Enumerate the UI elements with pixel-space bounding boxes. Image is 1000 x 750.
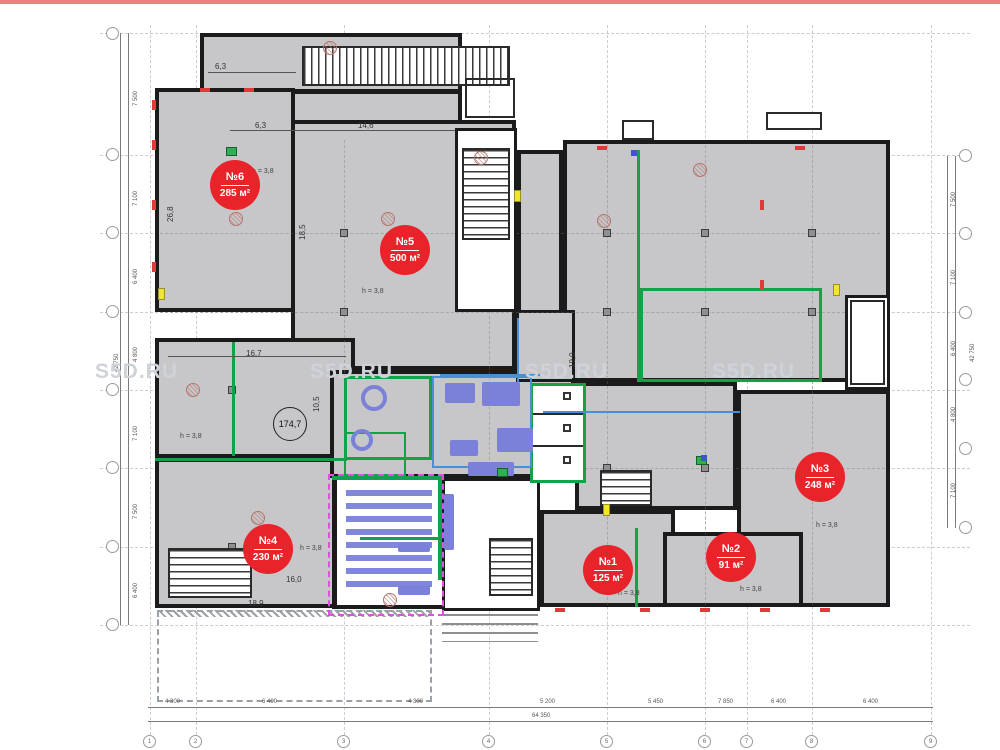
marker-green: [497, 468, 508, 477]
column: [603, 229, 611, 237]
green-partition: [232, 342, 235, 456]
grid-bubble-label: 1: [148, 739, 151, 745]
unit-area: 285 м²: [220, 186, 250, 199]
shaft-top: [465, 78, 515, 118]
wc-block: [530, 383, 586, 483]
dim-label: 18,5: [298, 224, 307, 240]
unit-number: №3: [806, 463, 834, 478]
desk-cluster: [482, 382, 520, 406]
stamp-mark: [693, 163, 707, 177]
alarm-mark: [152, 140, 156, 150]
wc-fixture: [563, 392, 571, 400]
stamp-mark: [597, 214, 611, 228]
stairs-unit-4: [168, 548, 252, 598]
axis-dim: 7 500: [951, 192, 957, 207]
watermark: S5D.RU: [525, 360, 608, 384]
grid-bubble-label: 7: [745, 739, 748, 745]
unit-number: №5: [391, 236, 419, 251]
grid-bubble: [959, 227, 972, 240]
height-note: h = 3,8: [816, 522, 838, 529]
stamp-mark: [323, 41, 337, 55]
grid-bubble-label: 5: [605, 739, 608, 745]
axis-dim: 6 400: [863, 699, 878, 705]
stairs-bottom: [489, 538, 533, 596]
marker-yellow: [514, 190, 521, 202]
grid-bubble: [959, 373, 972, 386]
axis-dim: 7 100: [951, 483, 957, 498]
alarm-mark: [700, 608, 710, 612]
axis-dim: 4 300: [408, 699, 423, 705]
alarm-mark: [597, 146, 607, 150]
alarm-mark: [244, 88, 254, 92]
axis-dim: 6 400: [133, 583, 139, 598]
round-table: [361, 385, 387, 411]
axis-dim: 6 400: [771, 699, 786, 705]
alarm-mark: [760, 200, 764, 210]
floorplan-page: { "page": { "watermark": "S5D.RU", "top_…: [0, 0, 1000, 750]
stamp-mark: [474, 151, 488, 165]
grid-bubble-label: 9: [929, 739, 932, 745]
marker-green: [226, 147, 237, 156]
stairs-mid: [600, 470, 652, 506]
marker-yellow: [158, 288, 165, 300]
dim-label: 16,0: [286, 575, 302, 584]
alarm-mark: [152, 100, 156, 110]
marker-blue: [631, 150, 637, 156]
entrance-steps: [442, 614, 538, 642]
dim-label: 26,8: [166, 206, 175, 222]
grid-bubble: [959, 442, 972, 455]
marker-yellow: [833, 284, 840, 296]
grid-bubble: 9: [924, 735, 937, 748]
axis-dim: 7 100: [133, 191, 139, 206]
grid-bubble: [106, 27, 119, 40]
column: [701, 229, 709, 237]
marker-blue: [701, 455, 707, 461]
grid-bubble: [106, 148, 119, 161]
terrace-outline: [157, 610, 432, 702]
unit-badge-4: №4 230 м²: [243, 524, 293, 574]
room-unit-6-upper: [291, 90, 462, 124]
area-circle-174: 174,7: [273, 407, 307, 441]
unit-badge-2: №2 91 м²: [706, 532, 756, 582]
axis-line-left-total: [120, 33, 121, 625]
axis-line-bottom: [148, 707, 933, 708]
axis-dim: 6 400: [262, 699, 277, 705]
grid-bubble-label: 8: [810, 739, 813, 745]
stamp-mark: [251, 511, 265, 525]
column: [340, 308, 348, 316]
alarm-mark: [555, 608, 565, 612]
desk-cluster: [450, 440, 478, 456]
shaft-right: [850, 300, 885, 385]
grid-bubble-label: 4: [487, 739, 490, 745]
wc-divider: [533, 413, 583, 415]
wall-niche: [622, 120, 654, 140]
round-table: [351, 429, 373, 451]
unit-area: 248 м²: [805, 478, 835, 491]
unit-badge-6: №6 285 м²: [210, 160, 260, 210]
seat-strip: [444, 494, 454, 550]
page-top-bar: [0, 0, 1000, 4]
height-note: h = 3,8: [362, 288, 384, 295]
axis-dim: 7 500: [133, 91, 139, 106]
column: [603, 308, 611, 316]
axis-dim: 7 100: [133, 426, 139, 441]
axis-line-bottom-total: [148, 721, 933, 722]
grid-bubble: 7: [740, 735, 753, 748]
grid-bubble: [959, 521, 972, 534]
axis-total: 42 750: [970, 344, 976, 362]
grid-bubble: 2: [189, 735, 202, 748]
grid-line-inner: [160, 233, 880, 234]
alarm-mark: [760, 280, 764, 290]
grid-bubble-label: 2: [194, 739, 197, 745]
unit-area: 125 м²: [593, 571, 623, 584]
wc-fixture: [563, 424, 571, 432]
height-note: h = 3,8: [740, 586, 762, 593]
grid-bubble: 3: [337, 735, 350, 748]
dim-label: 10,5: [312, 396, 321, 412]
grid-line: [931, 25, 932, 740]
desk-cluster: [497, 428, 533, 452]
watermark: S5D.RU: [310, 360, 393, 384]
axis-dim: 7 850: [718, 699, 733, 705]
axis-line-right: [947, 156, 948, 528]
axis-dim: 7 100: [951, 270, 957, 285]
grid-bubble: [959, 149, 972, 162]
room-annex: [517, 150, 563, 330]
grid-bubble: [959, 306, 972, 319]
column: [340, 229, 348, 237]
dim-label: 14,6: [358, 121, 374, 130]
alarm-mark: [640, 608, 650, 612]
dim-label: 18,9: [248, 599, 264, 608]
green-partition: [155, 458, 347, 461]
stamp-mark: [186, 383, 200, 397]
alarm-mark: [152, 200, 156, 210]
unit-number: №2: [717, 543, 745, 558]
axis-dim: 5 200: [540, 699, 555, 705]
axis-dim: 4 300: [165, 699, 180, 705]
wall-niche: [766, 112, 822, 130]
axis-dim: 7 500: [133, 504, 139, 519]
watermark: S5D.RU: [95, 360, 178, 384]
dim-line: [230, 130, 455, 131]
wc-fixture: [563, 456, 571, 464]
alarm-mark: [795, 146, 805, 150]
watermark: S5D.RU: [712, 360, 795, 384]
grid-bubble: [106, 540, 119, 553]
grid-bubble: 8: [805, 735, 818, 748]
magenta-zone-outline: [328, 474, 444, 616]
alarm-mark: [152, 262, 156, 272]
unit-badge-1: №1 125 м²: [583, 545, 633, 595]
unit-number: №4: [254, 535, 282, 550]
alarm-mark: [760, 608, 770, 612]
marker-yellow: [603, 504, 610, 516]
dim-line: [208, 72, 296, 73]
column: [701, 464, 709, 472]
grid-bubble: [106, 226, 119, 239]
grid-bubble: [106, 618, 119, 631]
dim-label: 6,3: [255, 121, 266, 130]
axis-dim: 6 400: [133, 269, 139, 284]
grid-bubble-label: 3: [342, 739, 345, 745]
unit-badge-3: №3 248 м²: [795, 452, 845, 502]
dim-label: 16,7: [246, 349, 262, 358]
grid-bubble: 1: [143, 735, 156, 748]
grid-bubble: [106, 305, 119, 318]
grid-bubble-label: 6: [703, 739, 706, 745]
stamp-mark: [229, 212, 243, 226]
grid-bubble: 5: [600, 735, 613, 748]
blue-glazing: [517, 318, 519, 382]
unit-number: №1: [594, 556, 622, 571]
column: [808, 229, 816, 237]
unit-area: 230 м²: [253, 550, 283, 563]
dim-label: 6,3: [215, 62, 226, 71]
alarm-mark: [200, 88, 210, 92]
height-note: h = 3,8: [180, 433, 202, 440]
desk-cluster: [445, 383, 475, 403]
alarm-mark: [820, 608, 830, 612]
unit-number: №6: [221, 171, 249, 186]
stamp-mark: [381, 212, 395, 226]
axis-dim: 4 800: [951, 407, 957, 422]
height-note: h = 3,8: [300, 545, 322, 552]
unit-area: 91 м²: [719, 558, 744, 571]
unit-area: 500 м²: [390, 251, 420, 264]
grid-bubble: [106, 383, 119, 396]
axis-total: 64 350: [532, 713, 550, 719]
area-circle-value: 174,7: [279, 419, 302, 429]
grid-bubble: [106, 461, 119, 474]
grid-bubble: 6: [698, 735, 711, 748]
wc-divider: [533, 445, 583, 447]
grid-bubble: 4: [482, 735, 495, 748]
axis-dim: 5 450: [648, 699, 663, 705]
axis-dim: 6 400: [951, 341, 957, 356]
unit-badge-5: №5 500 м²: [380, 225, 430, 275]
axis-line-left: [128, 33, 129, 625]
